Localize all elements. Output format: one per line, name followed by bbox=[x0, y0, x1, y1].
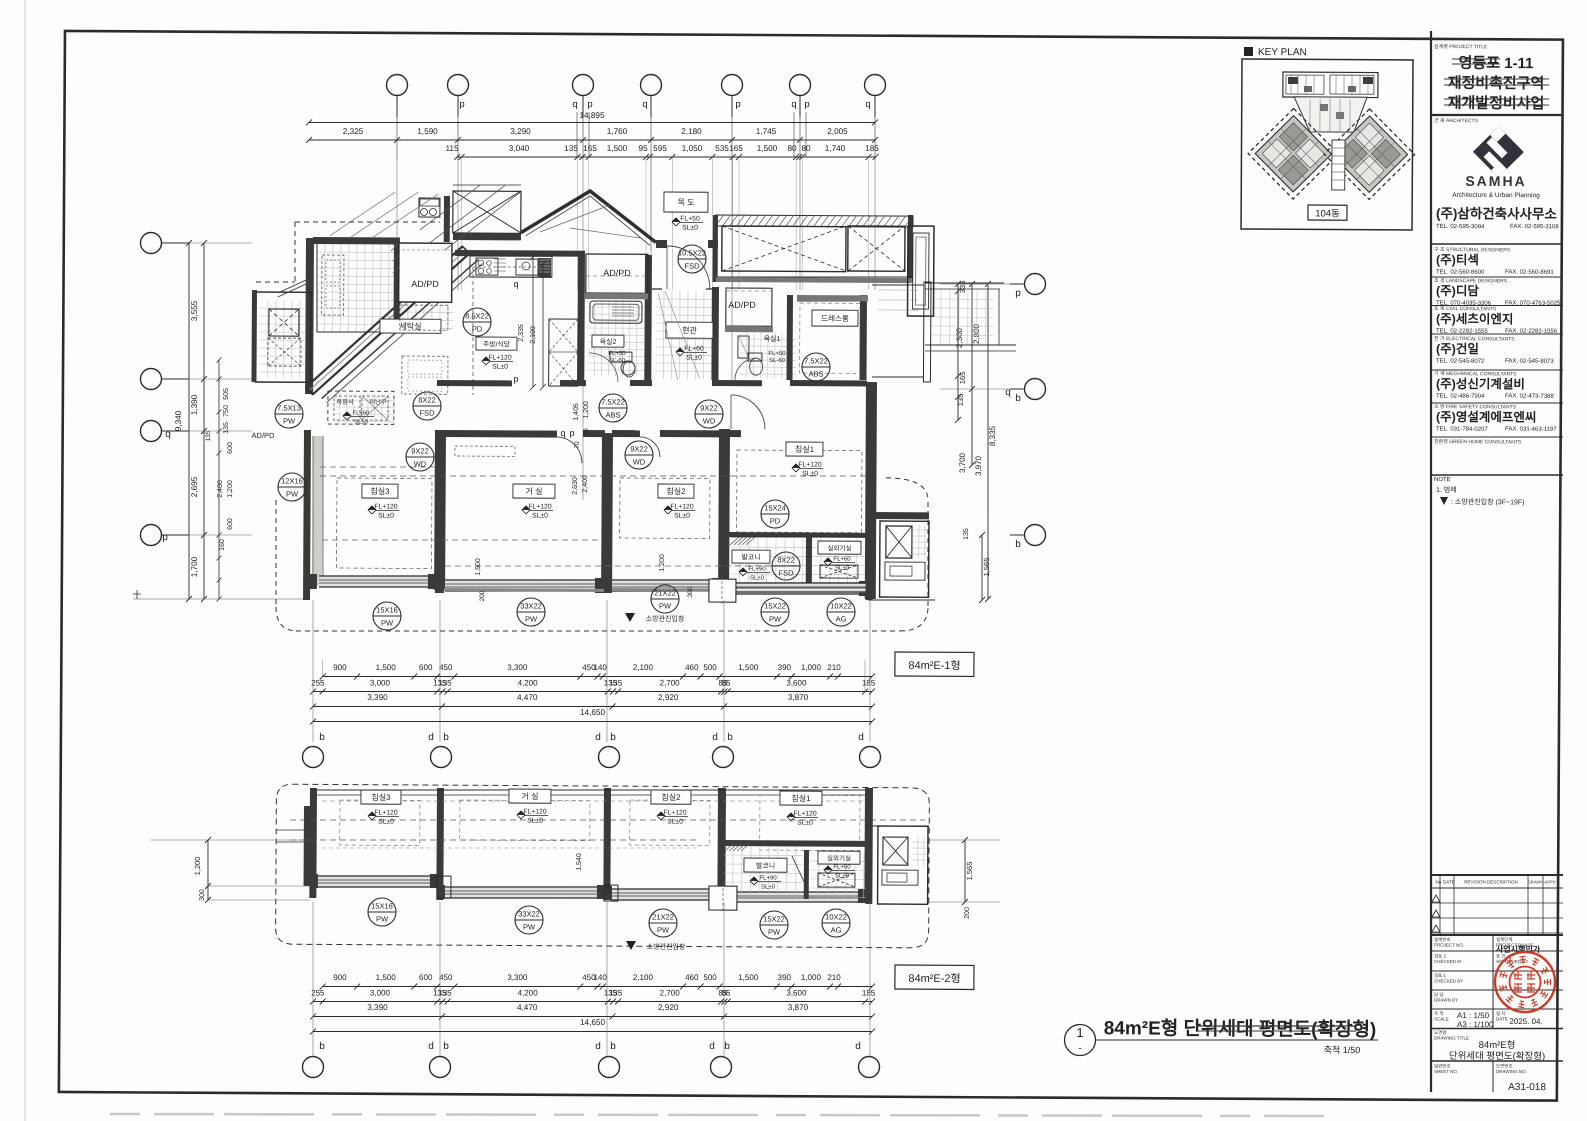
svg-text:도면명: 도면명 bbox=[1434, 1029, 1446, 1035]
svg-text:ABS: ABS bbox=[605, 410, 620, 419]
svg-text:2,920: 2,920 bbox=[658, 1003, 679, 1012]
svg-text:1,500: 1,500 bbox=[376, 973, 397, 982]
svg-text:600: 600 bbox=[227, 518, 234, 530]
svg-text:d: d bbox=[855, 1041, 861, 1052]
svg-text:(주)삼하건축사사무소: (주)삼하건축사사무소 bbox=[1436, 205, 1557, 222]
svg-text:1: 1 bbox=[1508, 954, 1513, 963]
svg-text:침실3: 침실3 bbox=[371, 792, 391, 802]
svg-text:q: q bbox=[865, 99, 870, 110]
svg-text:1,200: 1,200 bbox=[583, 401, 590, 419]
svg-text:135: 135 bbox=[223, 422, 230, 434]
svg-text:7.5X22: 7.5X22 bbox=[601, 397, 625, 406]
svg-text:12X16: 12X16 bbox=[281, 476, 303, 485]
svg-text:TEL. 02-486-7904: TEL. 02-486-7904 bbox=[1436, 393, 1485, 399]
svg-text:검토 2: 검토 2 bbox=[1434, 953, 1447, 959]
svg-text:DRAWING TITLE: DRAWING TITLE bbox=[1434, 1036, 1469, 1041]
svg-text:7.5X13: 7.5X13 bbox=[277, 403, 301, 412]
svg-text:SL±0: SL±0 bbox=[354, 419, 368, 425]
svg-text:500: 500 bbox=[703, 663, 717, 672]
svg-text:b: b bbox=[443, 732, 449, 743]
svg-text:A1 : 1/50: A1 : 1/50 bbox=[1457, 1011, 1490, 1020]
svg-text:84m²E-1형: 84m²E-1형 bbox=[908, 659, 960, 672]
svg-text:84m²E형 단위세대 평면도(확장형): 84m²E형 단위세대 평면도(확장형) bbox=[1104, 1016, 1377, 1041]
svg-text:3,000: 3,000 bbox=[370, 678, 391, 687]
svg-text:1,200: 1,200 bbox=[227, 480, 234, 498]
svg-text:q: q bbox=[165, 429, 171, 440]
svg-text:SL±0: SL±0 bbox=[378, 818, 394, 825]
svg-text:PW: PW bbox=[283, 416, 296, 425]
svg-text:1,500: 1,500 bbox=[376, 663, 397, 672]
svg-text:2,920: 2,920 bbox=[658, 693, 679, 702]
svg-text:3,870: 3,870 bbox=[788, 1003, 809, 1012]
svg-text:FSD: FSD bbox=[419, 408, 435, 417]
svg-text:135: 135 bbox=[205, 430, 212, 441]
svg-text:2,180: 2,180 bbox=[681, 127, 702, 136]
svg-text:PW: PW bbox=[525, 614, 538, 623]
svg-text:FL+120: FL+120 bbox=[374, 809, 398, 816]
svg-text:b: b bbox=[610, 732, 616, 743]
svg-text:14,650: 14,650 bbox=[580, 708, 606, 717]
svg-text:900: 900 bbox=[333, 973, 347, 982]
svg-text:q: q bbox=[572, 99, 577, 110]
svg-text:1,500: 1,500 bbox=[738, 973, 759, 982]
svg-text:NOTE: NOTE bbox=[1434, 477, 1451, 483]
svg-text:PW: PW bbox=[286, 489, 299, 498]
svg-text:FL+50: FL+50 bbox=[768, 351, 786, 357]
svg-text:95: 95 bbox=[638, 144, 648, 153]
svg-text:135: 135 bbox=[438, 988, 452, 997]
svg-text:FL+60: FL+60 bbox=[833, 864, 851, 870]
svg-text:침실1: 침실1 bbox=[791, 793, 811, 803]
svg-text:p: p bbox=[1015, 288, 1021, 299]
svg-text:: 소방관진입창 (3F~19F): : 소방관진입창 (3F~19F) bbox=[1451, 497, 1525, 506]
svg-text:A31-018: A31-018 bbox=[1508, 1082, 1546, 1093]
svg-text:FL+120: FL+120 bbox=[523, 808, 547, 815]
svg-text:SL±0: SL±0 bbox=[682, 224, 698, 231]
svg-text:33X22: 33X22 bbox=[518, 909, 540, 918]
svg-text:d: d bbox=[428, 732, 434, 743]
svg-text:1,745: 1,745 bbox=[756, 127, 777, 136]
svg-text:주방/식당: 주방/식당 bbox=[483, 339, 510, 348]
svg-text:PW: PW bbox=[376, 914, 389, 923]
svg-text:d: d bbox=[709, 1041, 715, 1052]
svg-text:AG: AG bbox=[831, 925, 842, 934]
svg-text:PW: PW bbox=[769, 614, 782, 623]
svg-text:도면번호: 도면번호 bbox=[1496, 1063, 1513, 1069]
svg-text:FL+120: FL+120 bbox=[528, 503, 552, 510]
svg-text:10.5X22: 10.5X22 bbox=[678, 248, 706, 257]
svg-text:Architecture & Urban Planning: Architecture & Urban Planning bbox=[1452, 192, 1540, 200]
svg-text:PD: PD bbox=[472, 324, 483, 333]
svg-text:135: 135 bbox=[609, 988, 623, 997]
svg-text:160: 160 bbox=[219, 539, 226, 551]
svg-text:-: - bbox=[1078, 1043, 1081, 1054]
svg-text:210: 210 bbox=[827, 663, 841, 672]
svg-text:2,325: 2,325 bbox=[343, 127, 364, 136]
svg-text:600: 600 bbox=[227, 442, 234, 454]
svg-text:SHEET NO.: SHEET NO. bbox=[1434, 1069, 1458, 1074]
svg-text:104동: 104동 bbox=[1315, 208, 1340, 219]
svg-text:TEL. 031-784-0207: TEL. 031-784-0207 bbox=[1436, 426, 1488, 432]
svg-text:SL±0: SL±0 bbox=[674, 512, 690, 519]
svg-text:목 도: 목 도 bbox=[678, 198, 695, 207]
svg-text:600: 600 bbox=[419, 973, 433, 982]
svg-text:1,390: 1,390 bbox=[190, 394, 199, 415]
svg-text:A3 : 1/100: A3 : 1/100 bbox=[1457, 1020, 1494, 1029]
svg-text:담 당: 담 당 bbox=[1434, 991, 1444, 997]
svg-text:PD: PD bbox=[770, 516, 781, 525]
svg-text:WD: WD bbox=[414, 459, 427, 468]
svg-text:900: 900 bbox=[333, 663, 347, 672]
svg-text:15X16: 15X16 bbox=[371, 901, 393, 910]
svg-text:10X22: 10X22 bbox=[830, 601, 852, 610]
svg-text:FSD: FSD bbox=[684, 261, 700, 270]
svg-text:검토 1: 검토 1 bbox=[1434, 972, 1447, 978]
svg-text:TEL. 02-595-3094: TEL. 02-595-3094 bbox=[1436, 224, 1485, 230]
svg-text:소방관진입창: 소방관진입창 bbox=[647, 942, 686, 951]
svg-text:15X22: 15X22 bbox=[763, 914, 785, 923]
svg-text:FL+90: FL+90 bbox=[759, 875, 777, 881]
svg-text:3,600: 3,600 bbox=[786, 678, 807, 687]
svg-text:AD/PD: AD/PD bbox=[411, 279, 439, 289]
svg-text:b: b bbox=[319, 732, 325, 743]
svg-text:3,390: 3,390 bbox=[367, 1003, 388, 1012]
svg-text:ABS: ABS bbox=[808, 369, 823, 378]
svg-text:SL±0: SL±0 bbox=[750, 575, 765, 581]
svg-text:3,040: 3,040 bbox=[509, 144, 530, 153]
svg-text:침실2: 침실2 bbox=[661, 792, 681, 802]
svg-text:200: 200 bbox=[964, 907, 971, 919]
svg-text:FL+50: FL+50 bbox=[680, 215, 700, 222]
svg-text:p: p bbox=[513, 374, 518, 384]
svg-text:AD/PD: AD/PD bbox=[603, 268, 631, 278]
svg-text:(주)티섹: (주)티섹 bbox=[1436, 252, 1479, 267]
svg-text:8X22: 8X22 bbox=[777, 555, 795, 564]
svg-text:SAMHA: SAMHA bbox=[1465, 173, 1526, 189]
svg-text:1,050: 1,050 bbox=[682, 144, 703, 153]
svg-text:2,700: 2,700 bbox=[660, 988, 681, 997]
svg-text:TEL. 02-560-8600: TEL. 02-560-8600 bbox=[1436, 269, 1485, 275]
svg-text:2,400: 2,400 bbox=[582, 475, 589, 493]
svg-text:4,200: 4,200 bbox=[518, 988, 539, 997]
svg-text:AD/PD: AD/PD bbox=[728, 300, 756, 310]
svg-text:15X22: 15X22 bbox=[764, 601, 786, 610]
svg-text:AD/PD: AD/PD bbox=[252, 431, 276, 440]
svg-text:DATE: DATE bbox=[1496, 1017, 1508, 1022]
svg-text:4,200: 4,200 bbox=[518, 678, 539, 687]
svg-text:390: 390 bbox=[778, 663, 792, 672]
svg-text:1,540: 1,540 bbox=[576, 853, 583, 871]
svg-text:7.5X22: 7.5X22 bbox=[804, 356, 828, 365]
svg-text:침실2: 침실2 bbox=[666, 486, 686, 496]
svg-text:1,760: 1,760 bbox=[607, 127, 628, 136]
svg-text:SL±0: SL±0 bbox=[532, 512, 548, 519]
svg-text:9X22: 9X22 bbox=[700, 403, 718, 412]
svg-text:SCALE: SCALE bbox=[1434, 1017, 1449, 1022]
svg-text:FL+90: FL+90 bbox=[748, 566, 766, 572]
svg-text:450: 450 bbox=[439, 973, 453, 982]
svg-text:DRAWN BY: DRAWN BY bbox=[1434, 998, 1458, 1003]
svg-text:TEL. 02-2282-1555: TEL. 02-2282-1555 bbox=[1436, 328, 1488, 334]
svg-text:b: b bbox=[1015, 539, 1021, 550]
svg-text:200: 200 bbox=[605, 883, 612, 894]
svg-text:1,590: 1,590 bbox=[417, 127, 438, 136]
svg-text:(주)영설계에프엔씨: (주)영설계에프엔씨 bbox=[1436, 409, 1536, 425]
svg-text:DATE: DATE bbox=[1443, 880, 1455, 885]
svg-text:135: 135 bbox=[956, 394, 965, 407]
svg-text:FAX. 02-2282-1556: FAX. 02-2282-1556 bbox=[1505, 328, 1558, 334]
svg-text:SL±0: SL±0 bbox=[378, 512, 394, 519]
svg-text:185: 185 bbox=[862, 988, 876, 997]
svg-text:15X16: 15X16 bbox=[376, 605, 398, 614]
svg-text:2,100: 2,100 bbox=[530, 326, 537, 344]
svg-text:3,390: 3,390 bbox=[367, 693, 388, 702]
svg-text:33X22: 33X22 bbox=[520, 601, 542, 610]
svg-text:b: b bbox=[319, 1041, 325, 1052]
svg-text:b: b bbox=[443, 1041, 449, 1052]
svg-text:일련번호: 일련번호 bbox=[1434, 1063, 1451, 1069]
svg-text:FSD: FSD bbox=[778, 568, 794, 577]
svg-text:185: 185 bbox=[865, 144, 879, 153]
svg-text:SL±0: SL±0 bbox=[527, 817, 543, 824]
svg-text:460: 460 bbox=[685, 973, 699, 982]
svg-text:140: 140 bbox=[593, 663, 607, 672]
svg-text:21X22: 21X22 bbox=[652, 912, 674, 921]
svg-text:9,340: 9,340 bbox=[174, 410, 183, 431]
svg-text:1,000: 1,000 bbox=[801, 663, 822, 672]
svg-text:FL+120: FL+120 bbox=[663, 809, 687, 816]
svg-text:FAX. 070-4763-5025: FAX. 070-4763-5025 bbox=[1505, 300, 1561, 306]
svg-text:80: 80 bbox=[801, 144, 811, 153]
svg-text:드레스룸: 드레스룸 bbox=[821, 314, 849, 323]
svg-text:3,300: 3,300 bbox=[507, 973, 528, 982]
svg-text:3,700: 3,700 bbox=[958, 452, 967, 473]
svg-text:FAX. 031-463-1197: FAX. 031-463-1197 bbox=[1505, 427, 1557, 433]
svg-text:1. 범례: 1. 범례 bbox=[1436, 485, 1457, 494]
svg-text:d: d bbox=[595, 732, 601, 743]
svg-text:재정비촉진구역: 재정비촉진구역 bbox=[1448, 74, 1545, 93]
svg-text:SL-60: SL-60 bbox=[769, 358, 786, 364]
svg-text:영등포 1-11: 영등포 1-11 bbox=[1459, 54, 1534, 72]
svg-text:SL±0: SL±0 bbox=[761, 884, 776, 890]
svg-text:10X22: 10X22 bbox=[825, 912, 847, 921]
svg-text:140: 140 bbox=[593, 973, 607, 982]
svg-text:AG: AG bbox=[836, 614, 847, 623]
svg-text:거 실: 거 실 bbox=[522, 791, 539, 801]
svg-text:PW: PW bbox=[523, 922, 536, 931]
svg-text:1,200: 1,200 bbox=[659, 554, 666, 572]
svg-text:FL+120: FL+120 bbox=[798, 461, 822, 468]
svg-text:1,565: 1,565 bbox=[982, 558, 991, 577]
svg-text:건 축 ARCHITECTS: 건 축 ARCHITECTS bbox=[1434, 117, 1479, 124]
svg-text:750: 750 bbox=[223, 405, 230, 417]
svg-text:q: q bbox=[513, 279, 518, 289]
svg-text:(주)디담: (주)디담 bbox=[1436, 283, 1479, 298]
svg-text:d: d bbox=[858, 732, 864, 743]
svg-text:소방관진입창: 소방관진입창 bbox=[646, 614, 685, 623]
svg-text:165: 165 bbox=[729, 144, 743, 153]
svg-text:침실3: 침실3 bbox=[370, 486, 390, 496]
svg-text:p: p bbox=[459, 99, 464, 110]
svg-text:CHECKED BY: CHECKED BY bbox=[1434, 979, 1463, 984]
svg-text:80: 80 bbox=[787, 144, 797, 153]
svg-text:1,500: 1,500 bbox=[738, 663, 759, 672]
svg-text:4,470: 4,470 bbox=[517, 693, 538, 702]
svg-text:p: p bbox=[162, 532, 168, 543]
svg-text:FAX. 02-560-8691: FAX. 02-560-8691 bbox=[1505, 269, 1554, 275]
svg-text:PW: PW bbox=[657, 925, 670, 934]
svg-text:3,870: 3,870 bbox=[788, 693, 809, 702]
svg-text:535: 535 bbox=[715, 144, 729, 153]
svg-text:(주)건일: (주)건일 bbox=[1436, 341, 1479, 356]
svg-text:SL±0: SL±0 bbox=[797, 819, 813, 826]
svg-text:DRAWING NO.: DRAWING NO. bbox=[1496, 1069, 1527, 1074]
svg-text:거 실: 거 실 bbox=[526, 486, 543, 496]
svg-text:2,100: 2,100 bbox=[633, 663, 654, 672]
svg-text:q: q bbox=[1005, 387, 1011, 398]
svg-text:하향식: 하향식 bbox=[336, 398, 353, 406]
svg-text:460: 460 bbox=[685, 663, 699, 672]
svg-text:14,895: 14,895 bbox=[579, 111, 605, 120]
svg-text:1,000: 1,000 bbox=[801, 973, 822, 982]
svg-text:SL±0: SL±0 bbox=[686, 354, 702, 361]
svg-text:2,700: 2,700 bbox=[660, 678, 681, 687]
svg-text:PW: PW bbox=[381, 618, 394, 627]
svg-text:1,200: 1,200 bbox=[193, 857, 202, 876]
svg-text:(주)성신기계설비: (주)성신기계설비 bbox=[1436, 376, 1525, 392]
svg-text:REVISION DESCRIPTION: REVISION DESCRIPTION bbox=[1464, 879, 1518, 884]
svg-text:b: b bbox=[727, 732, 733, 743]
svg-text:세탁실: 세탁실 bbox=[399, 321, 421, 331]
svg-text:450: 450 bbox=[439, 663, 453, 672]
svg-text:1,500: 1,500 bbox=[757, 144, 778, 153]
svg-text:84m²E형: 84m²E형 bbox=[1479, 1040, 1516, 1051]
svg-text:FAX. 02-473-7388: FAX. 02-473-7388 bbox=[1505, 394, 1554, 400]
svg-text:현관: 현관 bbox=[682, 325, 697, 335]
svg-text:135: 135 bbox=[963, 528, 970, 540]
svg-text:b: b bbox=[724, 1041, 730, 1052]
svg-text:2,695: 2,695 bbox=[190, 476, 199, 497]
svg-text:p: p bbox=[587, 99, 592, 110]
svg-text:b: b bbox=[610, 1041, 616, 1052]
svg-text:FAX. 02-545-8073: FAX. 02-545-8073 bbox=[1505, 358, 1554, 364]
svg-text:115: 115 bbox=[445, 144, 459, 153]
svg-text:3,300: 3,300 bbox=[507, 663, 528, 672]
svg-text:재개발정비사업: 재개발정비사업 bbox=[1448, 94, 1545, 113]
svg-text:2,005: 2,005 bbox=[827, 127, 848, 136]
svg-text:3,555: 3,555 bbox=[190, 300, 199, 321]
svg-text:친환경 GREEN HOME CONSULTANTS: 친환경 GREEN HOME CONSULTANTS bbox=[1434, 438, 1522, 446]
svg-text:FL+120: FL+120 bbox=[488, 354, 512, 361]
svg-text:390: 390 bbox=[778, 973, 792, 982]
svg-text:3,000: 3,000 bbox=[370, 988, 391, 997]
svg-text:3,600: 3,600 bbox=[786, 988, 807, 997]
svg-text:1,500: 1,500 bbox=[475, 558, 482, 576]
svg-text:210: 210 bbox=[827, 973, 841, 982]
svg-text:TEL. 02-545-8072: TEL. 02-545-8072 bbox=[1436, 358, 1485, 364]
svg-text:단위세대 평면도(확장형): 단위세대 평면도(확장형) bbox=[1449, 1050, 1545, 1063]
svg-text:14,650: 14,650 bbox=[580, 1018, 606, 1027]
svg-text:발코니: 발코니 bbox=[756, 861, 775, 870]
svg-text:1,500: 1,500 bbox=[607, 144, 628, 153]
svg-text:300: 300 bbox=[687, 586, 694, 597]
svg-text:PW: PW bbox=[659, 601, 672, 610]
svg-text:3,290: 3,290 bbox=[510, 127, 531, 136]
svg-text:FAX. 02-595-3108: FAX. 02-595-3108 bbox=[1510, 224, 1559, 230]
svg-text:2025. 04.: 2025. 04. bbox=[1509, 1017, 1542, 1026]
svg-text:SL±0: SL±0 bbox=[802, 470, 818, 477]
svg-text:승 인: 승 인 bbox=[1496, 953, 1506, 959]
svg-text:WD: WD bbox=[633, 457, 646, 466]
svg-text:발코니: 발코니 bbox=[741, 552, 760, 561]
svg-text:70: 70 bbox=[574, 441, 581, 449]
svg-text:d: d bbox=[428, 1041, 434, 1052]
svg-text:2,100: 2,100 bbox=[633, 973, 654, 982]
svg-text:FL+120: FL+120 bbox=[374, 503, 398, 510]
svg-text:135: 135 bbox=[609, 678, 623, 687]
svg-text:DRAWN: DRAWN bbox=[1528, 879, 1544, 884]
svg-text:FL+60: FL+60 bbox=[833, 556, 851, 562]
svg-text:2,400: 2,400 bbox=[217, 480, 224, 498]
svg-text:300: 300 bbox=[199, 889, 206, 901]
svg-text:실외기실: 실외기실 bbox=[828, 543, 852, 552]
svg-text:실외기실: 실외기실 bbox=[827, 853, 851, 862]
svg-text:b: b bbox=[1015, 393, 1021, 404]
svg-text:500: 500 bbox=[703, 973, 717, 982]
svg-text:1,405: 1,405 bbox=[573, 403, 580, 421]
svg-text:q: q bbox=[642, 99, 647, 110]
svg-text:욕실2: 욕실2 bbox=[600, 337, 617, 346]
svg-text:185: 185 bbox=[862, 678, 876, 687]
svg-text:8.5X22: 8.5X22 bbox=[465, 311, 489, 320]
svg-text:21X22: 21X22 bbox=[654, 588, 676, 597]
svg-text:70: 70 bbox=[583, 428, 590, 436]
svg-text:15X24: 15X24 bbox=[764, 503, 786, 512]
svg-text:FL+50: FL+50 bbox=[608, 351, 626, 357]
svg-text:1,565: 1,565 bbox=[965, 862, 974, 881]
svg-text:No: No bbox=[1436, 880, 1442, 885]
svg-text:q: q bbox=[791, 99, 796, 110]
svg-text:SL±0: SL±0 bbox=[835, 565, 850, 571]
svg-text:축척 1/50: 축척 1/50 bbox=[1324, 1045, 1361, 1055]
svg-text:q: q bbox=[560, 428, 565, 438]
svg-text:설계명 PROJECT TITLE: 설계명 PROJECT TITLE bbox=[1434, 43, 1488, 50]
svg-text:1,700: 1,700 bbox=[190, 556, 199, 577]
svg-text:4,470: 4,470 bbox=[517, 1003, 538, 1012]
svg-text:PROJECT NO.: PROJECT NO. bbox=[1434, 943, 1464, 948]
svg-text:KEY PLAN: KEY PLAN bbox=[1258, 47, 1307, 58]
svg-text:d: d bbox=[595, 1041, 601, 1052]
svg-text:2,630: 2,630 bbox=[572, 477, 579, 495]
svg-text:165: 165 bbox=[583, 144, 597, 153]
svg-text:200: 200 bbox=[479, 590, 486, 601]
svg-text:WD: WD bbox=[703, 416, 716, 425]
svg-text:FL+120: FL+120 bbox=[793, 810, 817, 817]
svg-text:135: 135 bbox=[564, 144, 578, 153]
svg-text:84m²E-2형: 84m²E-2형 bbox=[908, 972, 960, 985]
svg-text:1: 1 bbox=[1076, 1025, 1083, 1040]
svg-text:1,740: 1,740 bbox=[825, 144, 846, 153]
svg-text:(주)세츠이엔지: (주)세츠이엔지 bbox=[1436, 311, 1513, 326]
svg-text:PW: PW bbox=[768, 927, 781, 936]
svg-text:p: p bbox=[569, 428, 574, 438]
svg-text:SL±0: SL±0 bbox=[667, 818, 683, 825]
svg-text:85: 85 bbox=[722, 678, 732, 687]
svg-text:2,335: 2,335 bbox=[518, 324, 525, 342]
svg-text:505: 505 bbox=[223, 388, 230, 400]
svg-text:165: 165 bbox=[958, 372, 967, 385]
svg-text:9X22: 9X22 bbox=[630, 444, 648, 453]
